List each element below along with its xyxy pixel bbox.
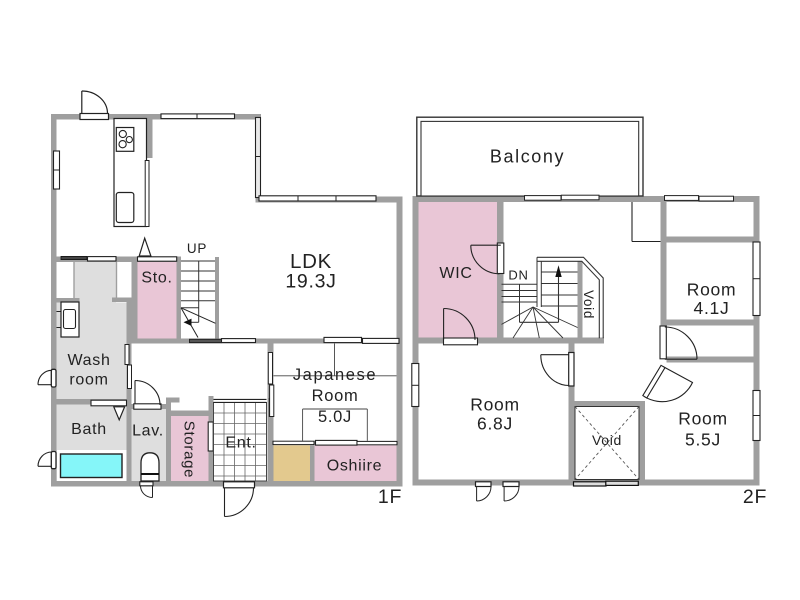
svg-text:Wash: Wash [67, 352, 110, 369]
svg-text:Room: Room [678, 409, 727, 429]
svg-text:Room: Room [312, 387, 359, 405]
svg-text:Japanese: Japanese [293, 366, 377, 384]
svg-text:4.1J: 4.1J [694, 298, 730, 318]
svg-text:DN: DN [508, 268, 528, 283]
svg-text:UP: UP [187, 241, 207, 256]
svg-text:room: room [69, 371, 108, 388]
svg-text:Void: Void [592, 432, 622, 448]
svg-text:Room: Room [470, 395, 519, 415]
svg-text:6.8J: 6.8J [477, 414, 513, 434]
svg-text:Bath: Bath [71, 421, 107, 438]
svg-text:Void: Void [581, 290, 596, 319]
svg-text:Oshiire: Oshiire [327, 458, 383, 475]
svg-text:5.5J: 5.5J [685, 430, 721, 450]
svg-text:Lav.: Lav. [132, 423, 164, 440]
svg-text:2F: 2F [743, 486, 767, 508]
svg-text:Sto.: Sto. [141, 270, 172, 287]
svg-text:5.0J: 5.0J [318, 408, 352, 426]
svg-text:Storage: Storage [181, 421, 198, 478]
svg-text:19.3J: 19.3J [285, 271, 336, 293]
svg-text:Balcony: Balcony [490, 146, 565, 166]
svg-text:Room: Room [687, 280, 736, 300]
svg-text:Ent.: Ent. [225, 435, 256, 452]
svg-text:1F: 1F [378, 486, 402, 508]
svg-text:WIC: WIC [439, 265, 472, 282]
